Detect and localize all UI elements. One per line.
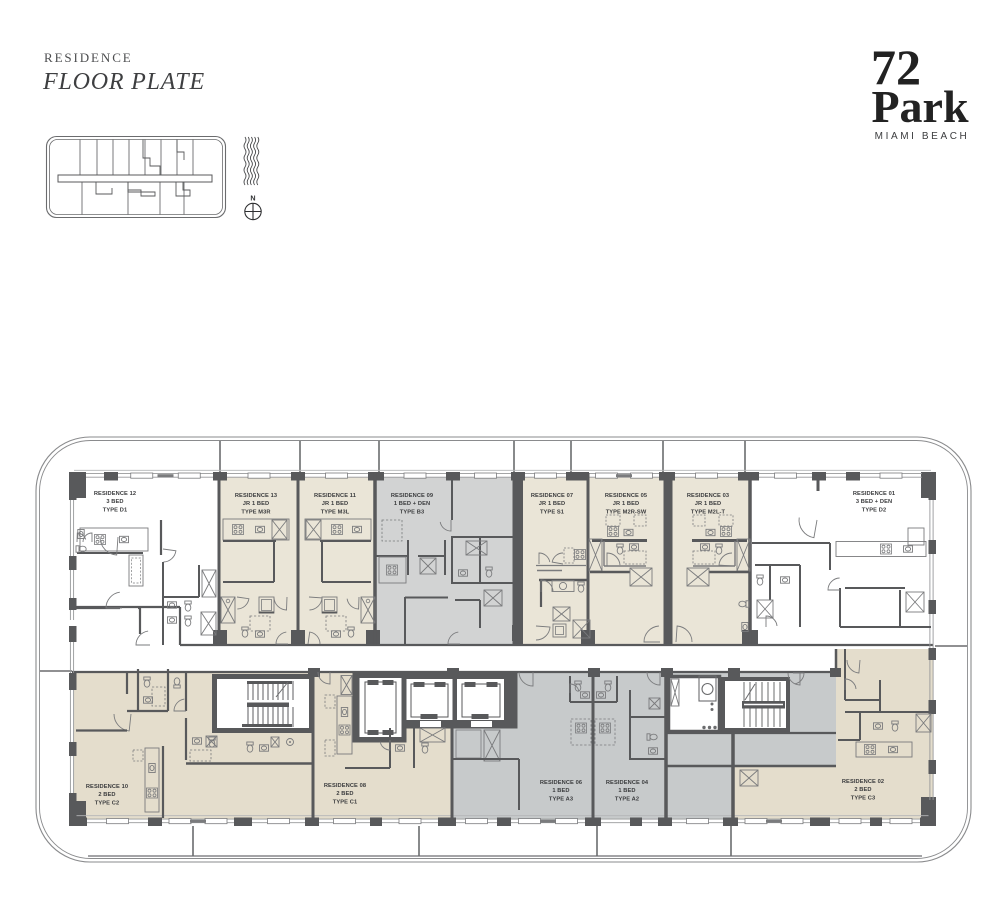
svg-text:2 BED: 2 BED (854, 787, 871, 793)
svg-text:TYPE M3L: TYPE M3L (321, 509, 350, 515)
svg-text:RESIDENCE 07: RESIDENCE 07 (531, 493, 573, 499)
svg-text:TYPE M3R: TYPE M3R (241, 509, 270, 515)
svg-text:RESIDENCE 03: RESIDENCE 03 (687, 493, 729, 499)
svg-text:RESIDENCE 11: RESIDENCE 11 (314, 493, 356, 499)
svg-text:RESIDENCE: RESIDENCE (44, 50, 133, 65)
svg-text:TYPE D1: TYPE D1 (103, 507, 127, 513)
svg-text:RESIDENCE 08: RESIDENCE 08 (324, 783, 366, 789)
svg-text:1 BED + DEN: 1 BED + DEN (394, 501, 430, 507)
svg-text:TYPE M2L-T: TYPE M2L-T (691, 509, 726, 515)
svg-text:JR 1 BED: JR 1 BED (322, 501, 348, 507)
svg-text:1 BED: 1 BED (552, 788, 569, 794)
svg-text:3 BED + DEN: 3 BED + DEN (856, 499, 892, 505)
svg-text:TYPE A3: TYPE A3 (549, 796, 573, 802)
svg-text:RESIDENCE 06: RESIDENCE 06 (540, 780, 582, 786)
svg-text:2 BED: 2 BED (336, 791, 353, 797)
svg-text:1 BED: 1 BED (618, 788, 635, 794)
svg-text:JR 1 BED: JR 1 BED (695, 501, 721, 507)
svg-text:3 BED: 3 BED (106, 499, 123, 505)
svg-text:RESIDENCE 02: RESIDENCE 02 (842, 779, 884, 785)
svg-text:N: N (250, 194, 255, 203)
svg-text:2 BED: 2 BED (98, 792, 115, 798)
svg-text:RESIDENCE 05: RESIDENCE 05 (605, 493, 647, 499)
svg-text:TYPE C1: TYPE C1 (333, 799, 357, 805)
svg-text:RESIDENCE 12: RESIDENCE 12 (94, 491, 136, 497)
svg-text:RESIDENCE 13: RESIDENCE 13 (235, 493, 277, 499)
svg-text:RESIDENCE 09: RESIDENCE 09 (391, 493, 433, 499)
svg-text:TYPE B3: TYPE B3 (400, 509, 424, 515)
svg-text:FLOOR PLATE: FLOOR PLATE (42, 69, 205, 95)
svg-text:Park: Park (871, 81, 969, 132)
svg-text:TYPE M2R-SW: TYPE M2R-SW (606, 509, 647, 515)
svg-text:TYPE D2: TYPE D2 (862, 507, 886, 513)
svg-text:RESIDENCE 01: RESIDENCE 01 (853, 491, 895, 497)
svg-text:RESIDENCE 10: RESIDENCE 10 (86, 784, 128, 790)
svg-text:TYPE C2: TYPE C2 (95, 800, 119, 806)
svg-text:JR 1 BED: JR 1 BED (243, 501, 269, 507)
svg-text:JR 1 BED: JR 1 BED (613, 501, 639, 507)
svg-text:MIAMI BEACH: MIAMI BEACH (875, 131, 970, 142)
svg-text:TYPE S1: TYPE S1 (540, 509, 564, 515)
svg-text:JR 1 BED: JR 1 BED (539, 501, 565, 507)
svg-text:RESIDENCE 04: RESIDENCE 04 (606, 780, 649, 786)
svg-text:TYPE A2: TYPE A2 (615, 796, 639, 802)
svg-text:TYPE C3: TYPE C3 (851, 795, 875, 801)
